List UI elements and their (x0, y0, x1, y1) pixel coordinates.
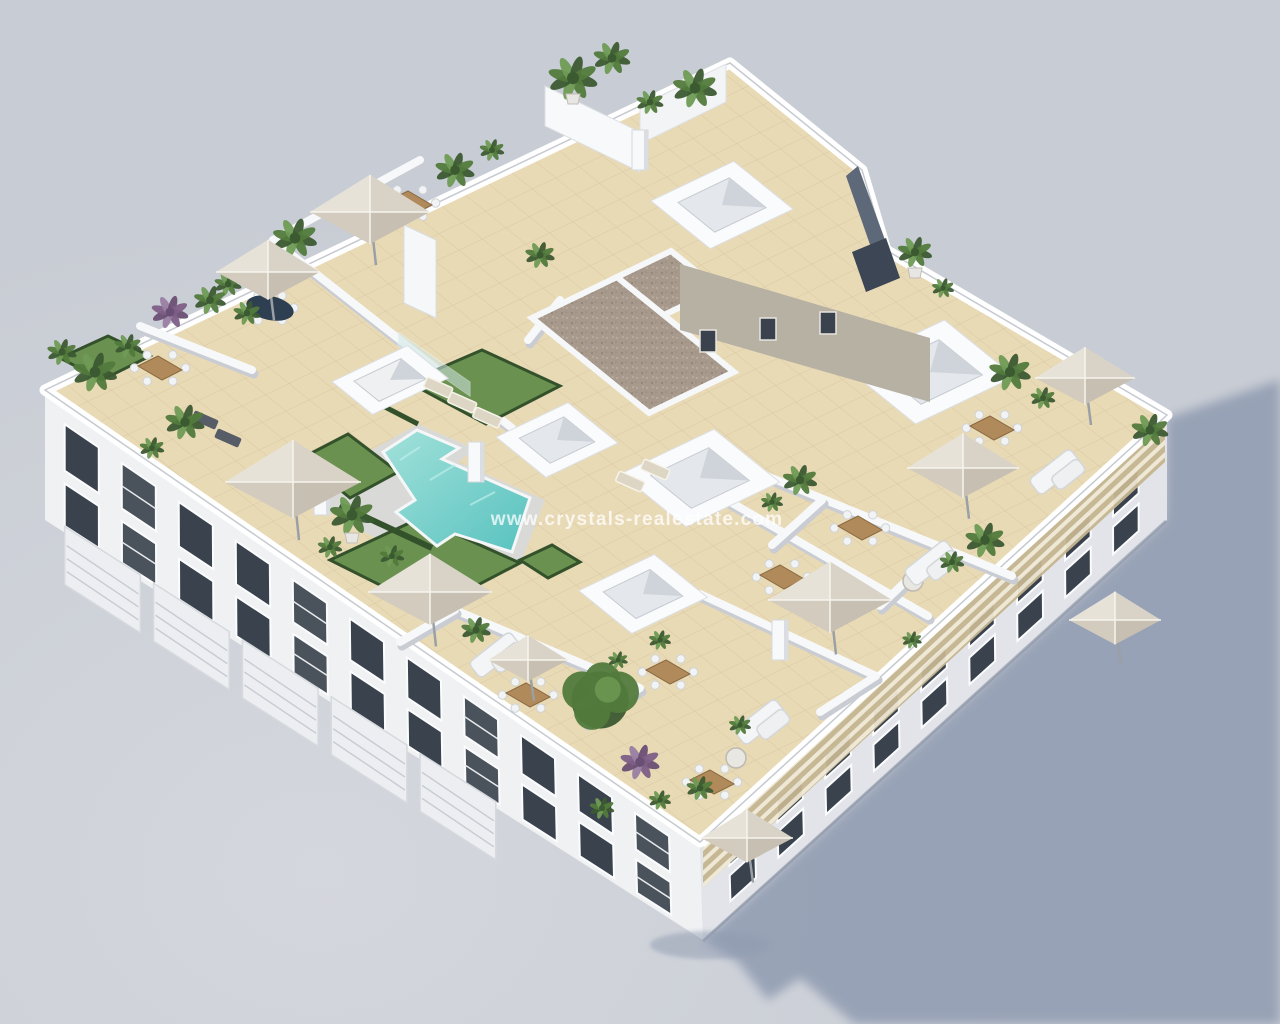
chair (869, 511, 877, 519)
chair (830, 524, 838, 532)
plant-pot (908, 268, 922, 278)
plant-center (489, 147, 495, 153)
plant-center (149, 445, 155, 451)
chair (511, 678, 519, 686)
chair (689, 668, 697, 676)
chair (791, 560, 799, 568)
chair (169, 351, 177, 359)
chair (1013, 424, 1021, 432)
plant-center (90, 367, 101, 378)
plant-center (796, 476, 804, 484)
watermark-text: www.crystals-realestate.com (490, 509, 784, 530)
plant-center (608, 54, 617, 63)
chair (721, 765, 729, 773)
chair (962, 424, 970, 432)
building-render-canvas: www.crystals-realestate.com (0, 0, 1280, 1024)
chair (765, 560, 773, 568)
chair (431, 199, 439, 207)
chair (695, 765, 703, 773)
chair (143, 377, 151, 385)
plant-center (536, 251, 543, 258)
plant-center (567, 72, 579, 84)
plant-center (389, 553, 395, 559)
chair (181, 364, 189, 372)
chair (881, 524, 889, 532)
plant-center (125, 343, 132, 350)
plant-pot (345, 533, 359, 543)
core-window (700, 330, 716, 352)
plant-center (940, 285, 945, 290)
chair (765, 586, 773, 594)
chair (511, 704, 519, 712)
plant-center (1146, 426, 1155, 435)
plant-center (327, 544, 333, 550)
chair (419, 186, 427, 194)
chair (537, 678, 545, 686)
chair (975, 411, 983, 419)
plant-center (225, 281, 232, 288)
round-table (726, 748, 746, 768)
chair (721, 791, 729, 799)
corner-contact-shadow (650, 931, 770, 959)
plant-center (911, 248, 919, 256)
plant-center (599, 805, 605, 811)
plant-center (616, 658, 621, 663)
plant-center (657, 637, 662, 642)
plant-center (244, 310, 251, 317)
plant-center (690, 83, 701, 94)
vent-stack-side (480, 442, 484, 482)
plant-center (980, 535, 990, 545)
vent-stack-side (644, 130, 648, 170)
plant-center (737, 722, 742, 727)
plant-center (949, 559, 955, 565)
chair (677, 681, 685, 689)
vent-stack-side (784, 620, 788, 660)
plant-center (166, 308, 175, 317)
plant-center (180, 417, 190, 427)
wall-panel (404, 225, 436, 318)
plant-center (657, 797, 662, 802)
tree-canopy (595, 677, 621, 703)
chair (651, 655, 659, 663)
plant-center (1005, 367, 1015, 377)
chair (752, 573, 760, 581)
plant-center (697, 785, 704, 792)
chair (1001, 411, 1009, 419)
plant-center (58, 348, 65, 355)
chair (1001, 437, 1009, 445)
plant-pot (566, 94, 580, 104)
plant-center (1040, 395, 1046, 401)
plant-center (206, 296, 214, 304)
plant-center (769, 499, 774, 504)
chair (130, 364, 138, 372)
chair (843, 511, 851, 519)
chair (638, 668, 646, 676)
plant-center (347, 510, 358, 521)
core-window (820, 312, 836, 334)
chair (498, 691, 506, 699)
plant-center (647, 99, 654, 106)
plant-center (635, 757, 645, 767)
plant-center (450, 165, 460, 175)
plant-center (472, 626, 479, 633)
plant-center (290, 233, 301, 244)
chair (549, 691, 557, 699)
chair (733, 778, 741, 786)
chair (169, 377, 177, 385)
plant-center (910, 638, 915, 643)
chair (143, 351, 151, 359)
core-window (760, 318, 776, 340)
chair (843, 537, 851, 545)
chair (869, 537, 877, 545)
chair (677, 655, 685, 663)
chair (651, 681, 659, 689)
render-image: www.crystals-realestate.com (0, 0, 1280, 1024)
chair (537, 704, 545, 712)
